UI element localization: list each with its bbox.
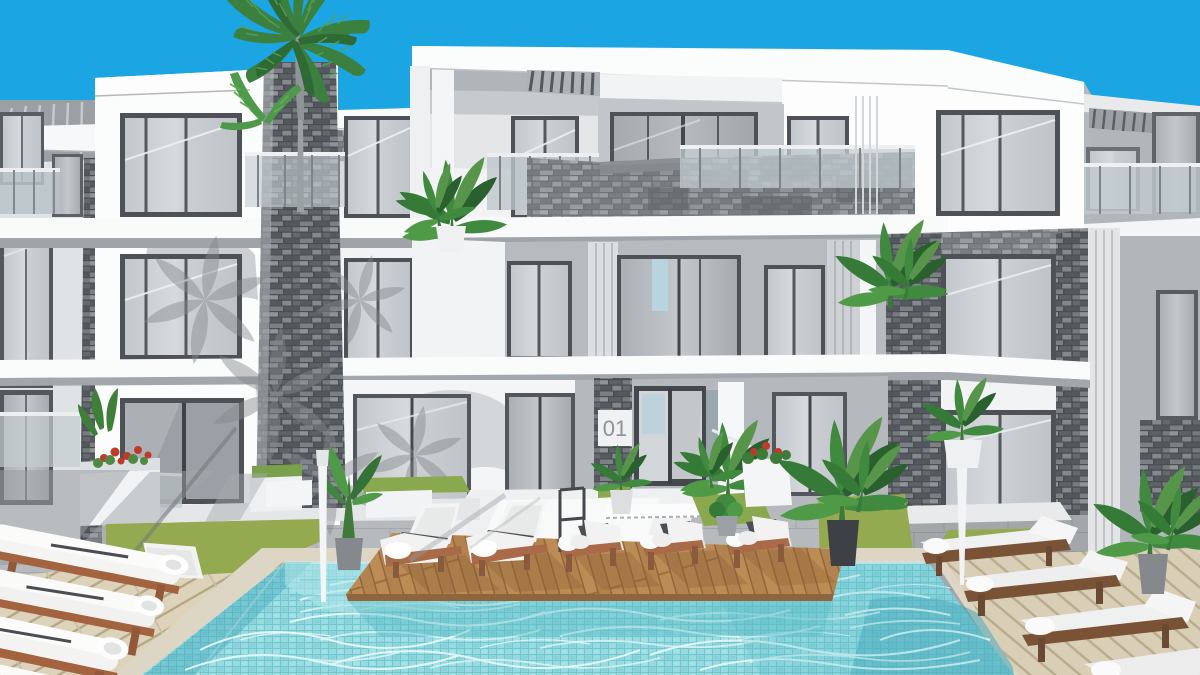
svg-text:01: 01 [603, 416, 627, 441]
